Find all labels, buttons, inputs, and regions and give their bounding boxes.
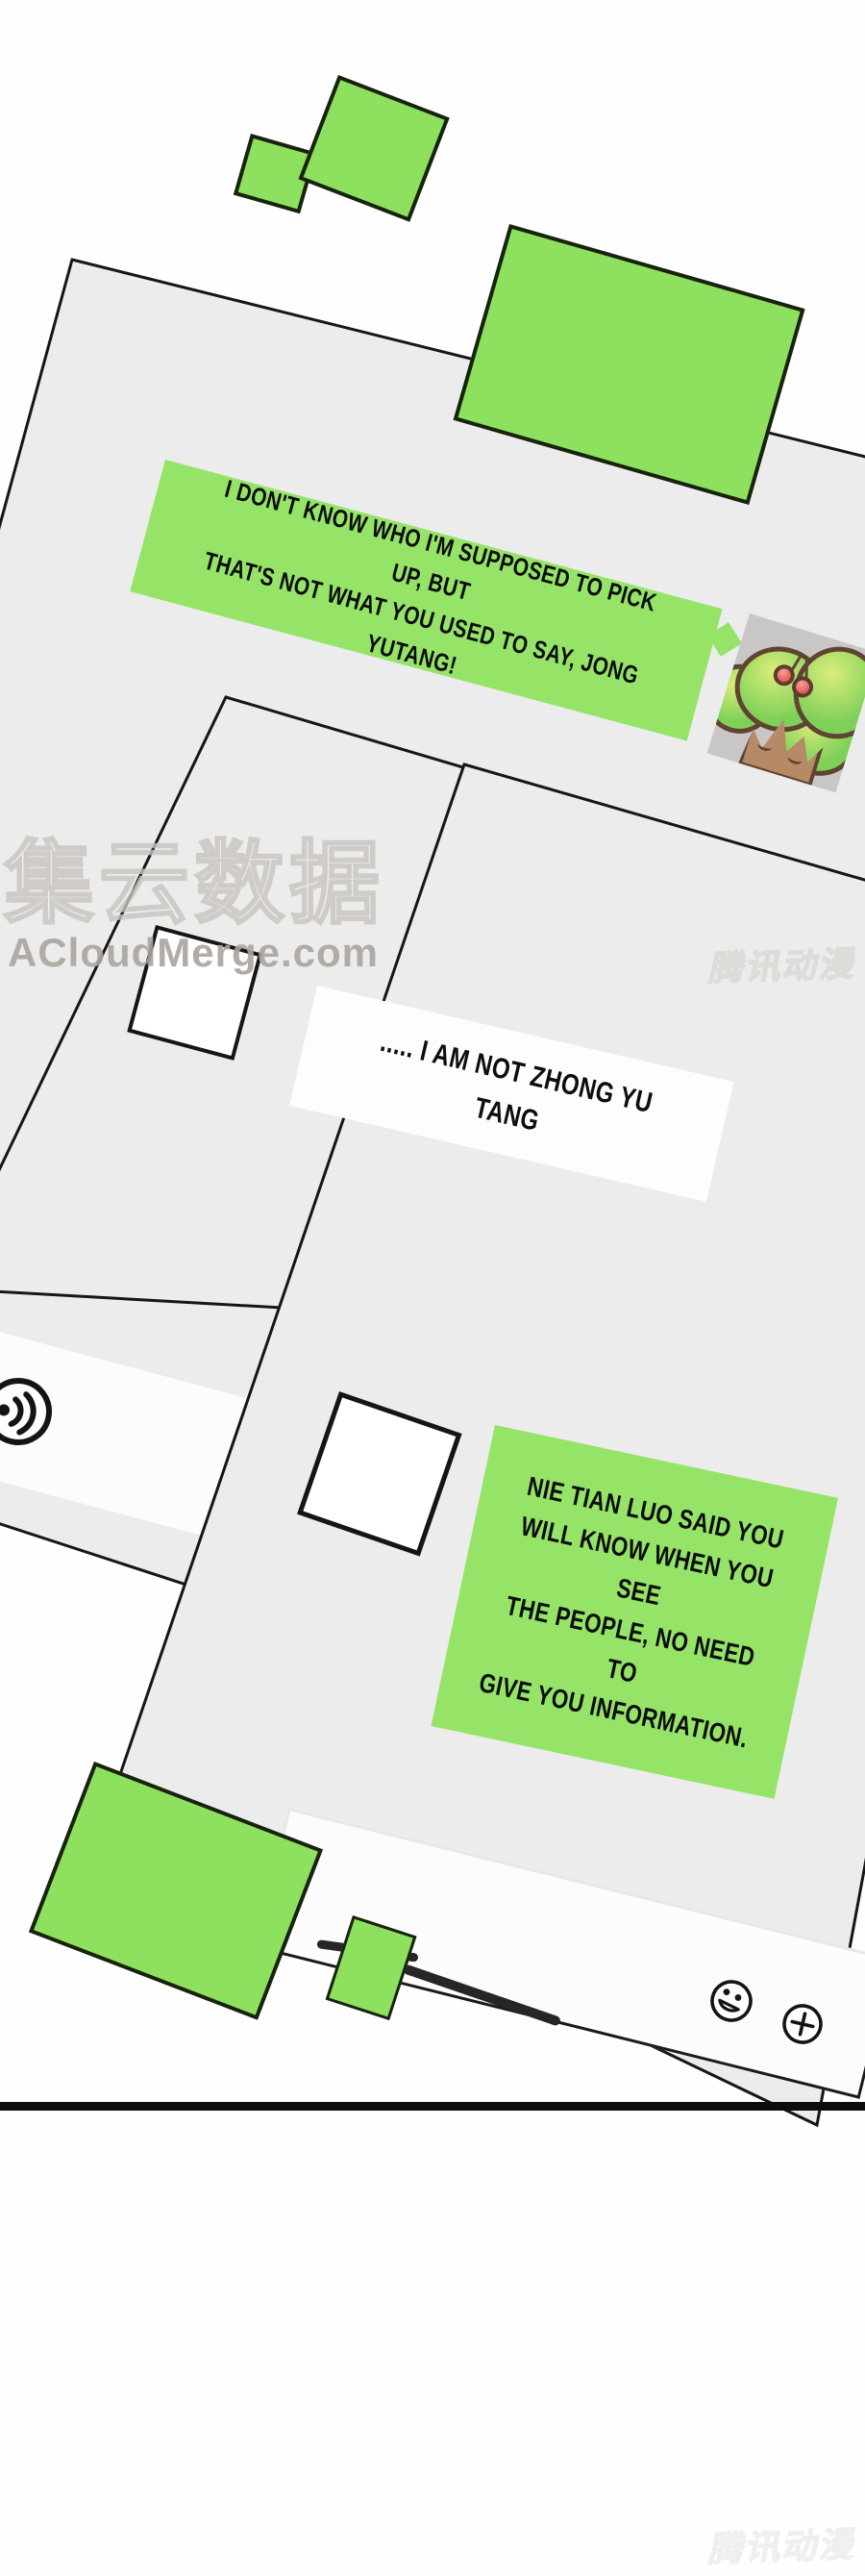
speech-bubble-3-text: NIE TIAN LUO SAID YOU WILL KNOW WHEN YOU… bbox=[472, 1464, 797, 1760]
watermark-brand-site: ACloudMerge.com bbox=[8, 933, 384, 973]
watermark-brand-cn: 集云数据 bbox=[4, 838, 384, 929]
watermark-platform-mid: 腾讯动漫 bbox=[706, 936, 862, 990]
watermark-brand: 集云数据 ACloudMerge.com bbox=[4, 838, 384, 973]
panel-divider-line bbox=[0, 2102, 865, 2111]
comic-page: I DON'T KNOW WHO I'M SUPPOSED TO PICK UP… bbox=[0, 0, 865, 2576]
watermark-platform-bottom: 腾讯动漫 bbox=[706, 2516, 862, 2571]
